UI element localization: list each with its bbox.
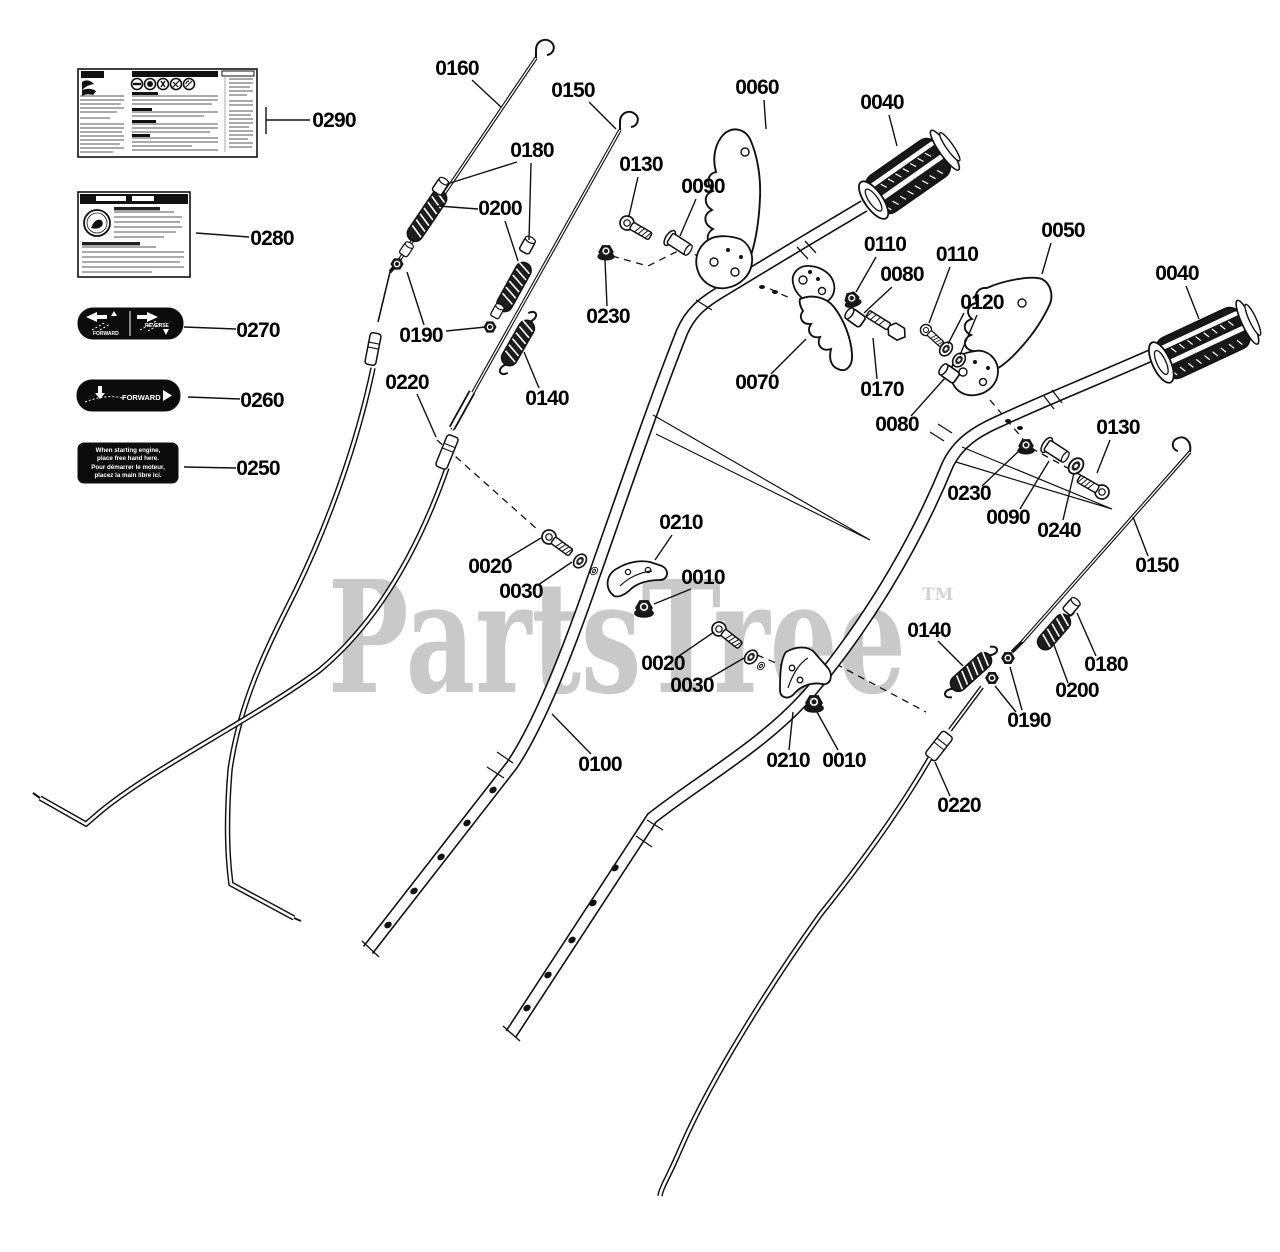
leader-line-0200 — [1054, 645, 1068, 683]
leader-line-0150 — [589, 102, 616, 129]
hex-nut — [1002, 653, 1014, 664]
watermark-tm: TM — [922, 585, 954, 605]
leader-line-0060 — [764, 100, 766, 129]
leader-line-0260 — [188, 397, 240, 399]
decal-hand-line2: place free hand here. — [97, 455, 159, 462]
decal-hand-line4: placez la main libre ici. — [94, 472, 161, 479]
handle-grip-right — [1143, 297, 1266, 388]
flange-lock-nut — [1018, 440, 1034, 454]
leader-line-0200 — [438, 206, 478, 209]
warning-label-large — [78, 69, 257, 157]
washer — [1066, 455, 1087, 476]
leader-line-0250 — [184, 467, 236, 468]
leader-line-0120 — [948, 313, 964, 344]
leader-line-0090 — [1020, 461, 1049, 509]
leader-line-0230 — [982, 449, 1021, 486]
lever-pivot-plate — [696, 236, 752, 288]
rod-bushing — [519, 235, 537, 255]
decal-forward-text: FORWARD — [122, 393, 161, 402]
decal-hand-line3: Pour démarrer le moteur, — [91, 464, 165, 471]
control-lever-upper-right — [951, 278, 1051, 396]
warning-label-small — [78, 192, 190, 277]
spacer — [843, 306, 866, 327]
control-rod-center — [452, 112, 638, 430]
leader-line-0040 — [1186, 286, 1199, 319]
leader-line-0160 — [472, 80, 501, 107]
leader-line-0180 — [529, 163, 531, 240]
leader-line-0110 — [929, 267, 950, 323]
shoulder-bolt — [1075, 472, 1111, 501]
leader-line-0110 — [856, 257, 876, 292]
shoulder-bolt — [617, 213, 653, 242]
rod-bushing — [1062, 596, 1081, 616]
leader-line-0140 — [938, 641, 963, 666]
leader-line-0080 — [911, 378, 945, 416]
leader-line-0150 — [1133, 517, 1148, 556]
leader-line-0220 — [935, 762, 950, 796]
cable-ferrule — [365, 332, 382, 366]
decal-forward: FORWARD — [77, 380, 180, 411]
handle-grip-left — [852, 125, 966, 225]
leader-line-0200 — [505, 221, 518, 261]
flange-lock-nut — [598, 246, 614, 260]
parts-diagram-page: PartsTree TM — [0, 0, 1280, 1252]
leader-line-0090 — [680, 199, 696, 236]
leader-line-0190 — [995, 686, 1016, 712]
hex-bolt — [864, 308, 909, 343]
hex-nut — [986, 673, 998, 684]
cable-ferrule — [925, 730, 954, 762]
decal-forward-word: FORWARD — [93, 331, 119, 337]
diagram-canvas: PartsTree TM — [0, 0, 1280, 1252]
decal-hand-placement: When starting engine, place free hand he… — [78, 443, 178, 483]
leader-line-0130 — [1097, 440, 1110, 473]
pivot-bushing — [662, 229, 695, 259]
decal-hand-line1: When starting engine, — [96, 447, 161, 454]
leader-line-0270 — [184, 327, 236, 329]
decal-direction: FORWARD REVERSE — [78, 308, 183, 339]
leader-line-0190 — [1010, 667, 1022, 710]
leader-line-0050 — [1042, 243, 1051, 274]
leader-line-0220 — [417, 394, 436, 437]
leader-line-0070 — [771, 339, 806, 374]
rod-spring-left — [404, 187, 450, 244]
hex-nut — [391, 259, 403, 269]
control-lever-upper-left — [696, 129, 760, 288]
leader-line-0180 — [1077, 613, 1096, 656]
flange-lock-nut — [843, 291, 862, 309]
leader-line-0230 — [605, 260, 607, 306]
leader-line-0280 — [196, 233, 249, 237]
leader-line-0190 — [446, 327, 486, 331]
cable-ferrule — [435, 434, 459, 470]
leader-line-0170 — [873, 338, 877, 379]
control-rod-right — [1012, 437, 1190, 652]
leader-line-0190 — [407, 272, 424, 325]
control-lever-lower — [793, 266, 852, 370]
leader-line-0140 — [524, 352, 539, 388]
leader-line-0080 — [864, 287, 892, 313]
leader-line-0130 — [629, 177, 638, 216]
clutch-cable-right — [660, 687, 982, 1196]
decal-reverse-word: REVERSE — [145, 323, 170, 329]
leader-line-0040 — [889, 115, 897, 146]
